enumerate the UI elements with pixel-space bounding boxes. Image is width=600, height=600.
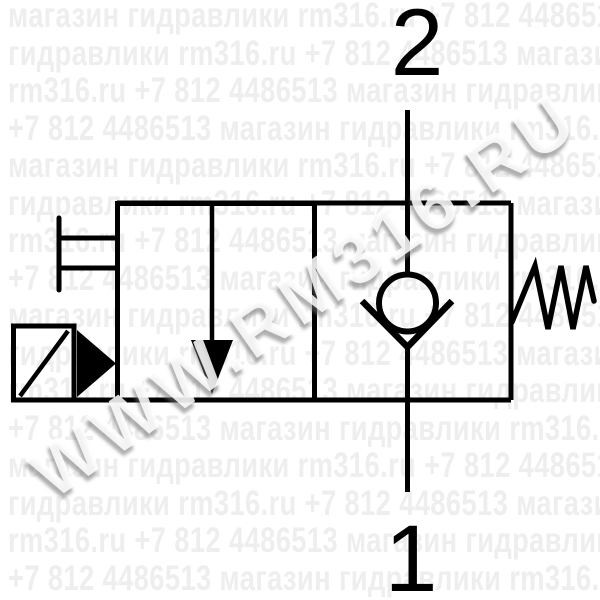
spring-zigzag <box>512 266 594 329</box>
spring-icon <box>512 266 594 329</box>
solenoid-diagonal <box>20 331 68 396</box>
port-1-label: 1 <box>385 512 438 600</box>
schematic-canvas: магазин гидравлики rm316.ru +7 812 44865… <box>0 0 600 600</box>
manual-override-icon <box>59 218 117 290</box>
port-2-label: 2 <box>391 0 444 91</box>
